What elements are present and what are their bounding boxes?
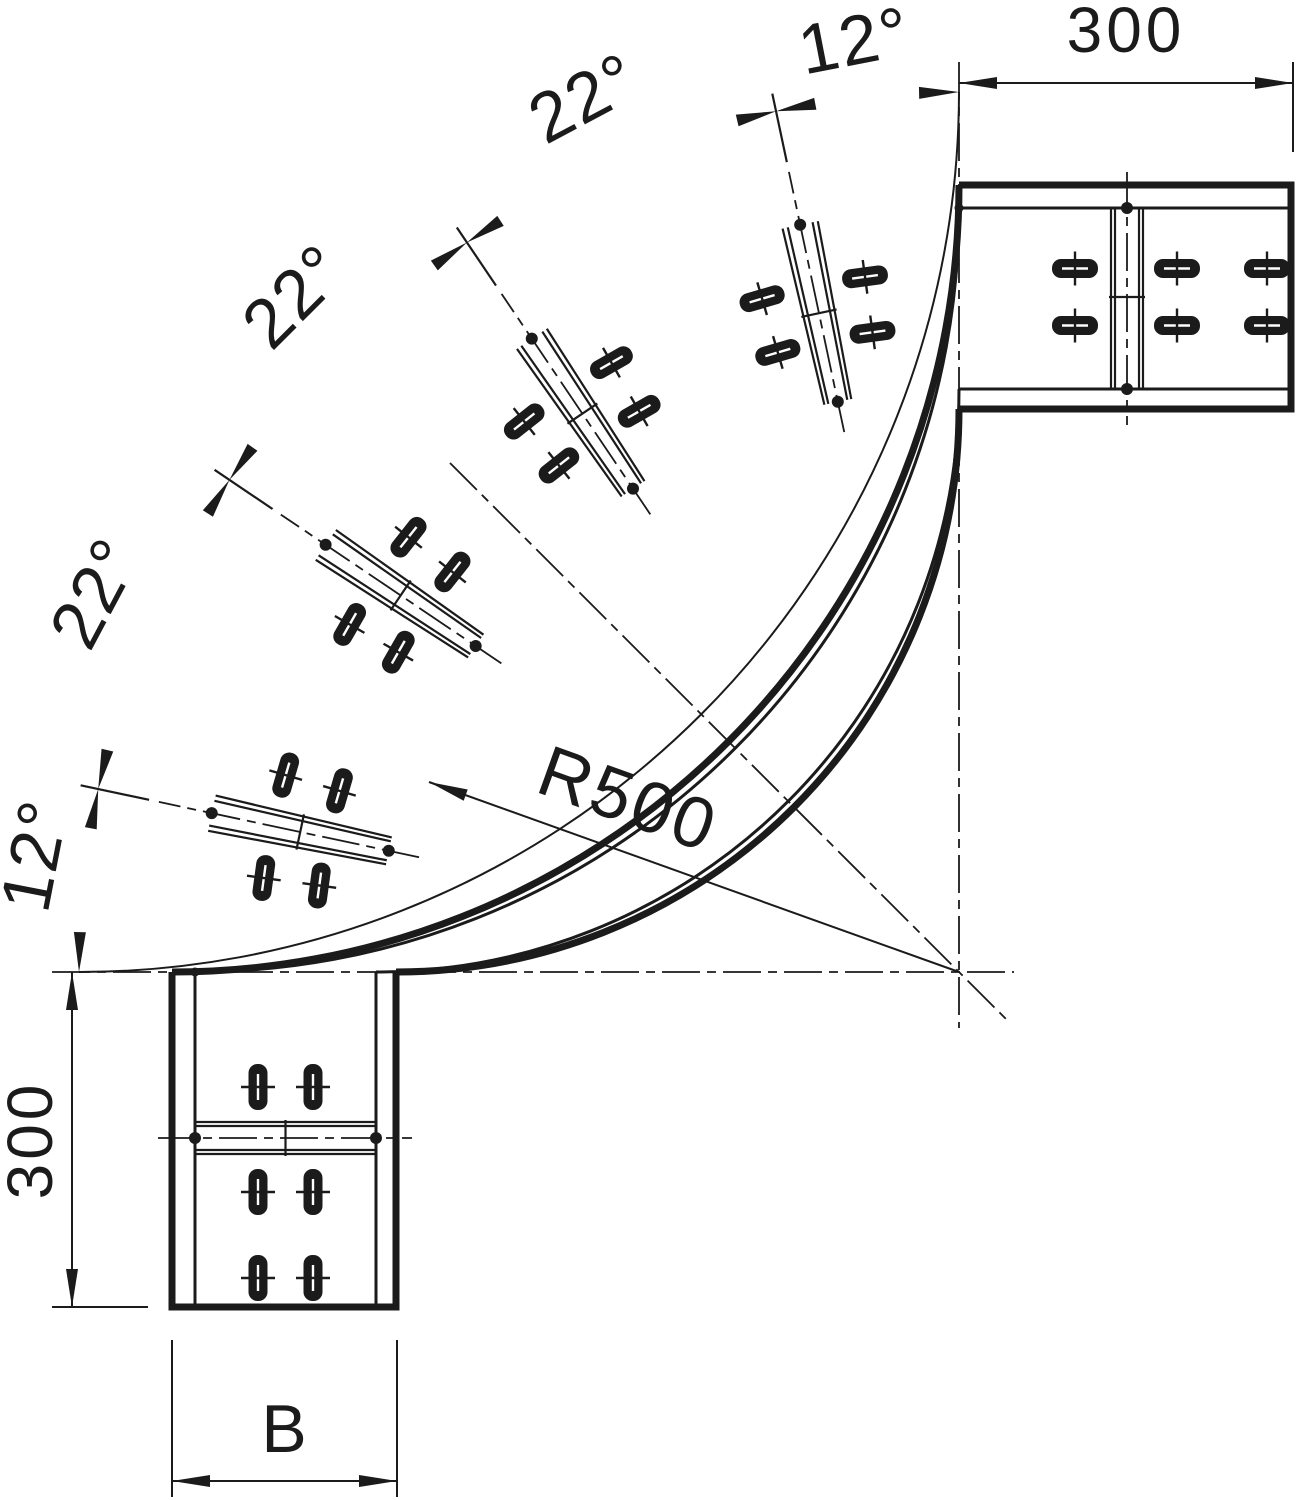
slot-hole [611,385,668,437]
junction-dot [320,539,332,551]
arc-arrow [229,444,257,480]
angle-label-22-2: 22° [227,229,361,363]
slot-hole [1052,309,1098,343]
slot-hole [241,1255,275,1301]
slot-hole [296,1169,330,1215]
tray-body [169,182,1292,1308]
dimension-arrow [172,1475,210,1487]
slot-hole [496,394,553,449]
slot-hole [317,764,363,818]
slot-hole [583,336,640,388]
angle-boundary-tick [81,785,149,800]
junction-dot [370,1132,382,1144]
arc-arrow [736,111,776,126]
dimension-arrow [66,972,78,1010]
joint-centerline [502,294,651,515]
junction-dot [526,333,538,345]
joint-center-cross [567,404,597,424]
slot-hole [751,330,805,376]
slot-hole [263,748,309,802]
slot-hole [296,1064,330,1110]
dimension-arrow [66,1269,78,1307]
arc-arrow [431,242,467,270]
diagonal-centerline [450,463,1008,1021]
junction-dot [206,807,218,819]
angle-label-bottom-12: 12° [0,793,83,918]
dimension-arrow [1255,77,1293,89]
slot-hole [244,853,284,903]
labels: 300300BR50012°22°22°22°12° [0,0,1185,1467]
junction-dot [1121,202,1133,214]
slot-hole [241,1064,275,1110]
cable-tray-bend-drawing: 300300BR50012°22°22°22°12° [0,0,1297,1500]
slot-hole [299,860,339,910]
radius-arrow [429,782,468,801]
slot-hole [1154,252,1200,286]
dimension-arrow [359,1475,397,1487]
width-label: B [261,1391,308,1467]
angle-label-22-1: 22° [516,37,651,158]
junction-dot [383,845,395,857]
joint-center-cross [391,580,411,610]
slot-hole [735,276,789,322]
angle-label-22-3: 22° [34,525,155,660]
arc-arrow [467,216,504,243]
junction-dot [627,483,639,495]
slot-hole [323,596,375,653]
slot-hole [1244,252,1290,286]
slot-hole [840,257,890,297]
slot-hole [530,438,587,493]
top-length-label: 300 [1067,0,1186,66]
junction-dot [794,219,806,231]
arc-arrow [98,749,113,789]
arc-arrow [919,87,959,99]
slot-hole [241,1169,275,1215]
angle-boundary-tick [772,94,787,162]
angle-label-top-12: 12° [792,0,917,89]
junction-dot [470,640,482,652]
junction-dot [832,396,844,408]
joint-centerline [281,515,502,664]
junction-dot [189,1132,201,1144]
slot-hole [372,624,424,681]
joint-centerline [789,172,844,432]
slot-hole [296,1255,330,1301]
radius-label: R500 [528,731,728,868]
slot-hole [1052,252,1098,286]
segment-joint [81,785,419,864]
slot-hole [1154,309,1200,343]
slot-hole [847,312,897,352]
segment-joint [772,94,851,432]
junction-dot [1121,383,1133,395]
side-length-label: 300 [0,1081,66,1200]
drawing-canvas: 300300BR50012°22°22°22°12° [0,0,1297,1500]
arc-arrow [776,98,816,111]
dimension-arrow [959,77,997,89]
arc-arrow [74,932,86,972]
arc-arrow [85,789,98,829]
slot-hole [425,543,480,600]
slot-hole [1244,309,1290,343]
joint-centerline [159,802,419,857]
slot-hole [381,509,436,566]
arc-arrow [203,480,230,517]
